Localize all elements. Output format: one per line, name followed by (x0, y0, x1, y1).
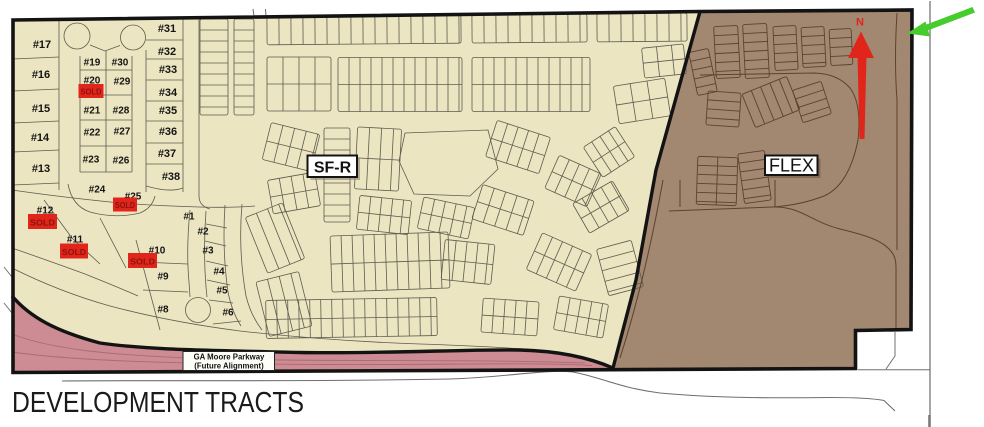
svg-text:#26: #26 (113, 156, 130, 167)
svg-text:#38: #38 (162, 171, 180, 183)
svg-text:#8: #8 (157, 305, 169, 316)
svg-text:SOLD: SOLD (115, 200, 135, 210)
svg-text:#31: #31 (158, 23, 176, 35)
svg-text:(Future Alignment): (Future Alignment) (194, 362, 264, 371)
svg-text:#4: #4 (213, 267, 225, 278)
svg-text:#17: #17 (33, 39, 51, 51)
svg-text:#23: #23 (83, 155, 100, 166)
svg-text:#35: #35 (159, 105, 177, 117)
svg-text:#14: #14 (31, 132, 50, 144)
svg-text:#16: #16 (32, 69, 50, 81)
svg-text:#9: #9 (157, 272, 169, 283)
svg-text:SOLD: SOLD (130, 256, 155, 266)
svg-text:#22: #22 (84, 128, 101, 139)
svg-text:#21: #21 (84, 106, 101, 117)
svg-text:#24: #24 (89, 185, 106, 196)
svg-text:FLEX: FLEX (769, 156, 814, 176)
svg-text:GA Moore Parkway: GA Moore Parkway (194, 352, 265, 361)
svg-text:#37: #37 (158, 148, 176, 160)
svg-text:#19: #19 (84, 58, 101, 69)
svg-text:#28: #28 (113, 106, 130, 117)
svg-text:#6: #6 (222, 308, 234, 319)
svg-text:#30: #30 (112, 58, 129, 69)
svg-text:#34: #34 (159, 87, 178, 99)
svg-text:#2: #2 (197, 227, 209, 238)
svg-text:SOLD: SOLD (30, 217, 55, 227)
svg-text:DEVELOPMENT TRACTS: DEVELOPMENT TRACTS (12, 387, 304, 419)
svg-text:#13: #13 (32, 163, 50, 175)
svg-text:#3: #3 (202, 246, 214, 257)
svg-text:N: N (856, 17, 864, 29)
svg-text:#5: #5 (216, 286, 228, 297)
svg-text:SOLD: SOLD (81, 86, 102, 96)
svg-text:#32: #32 (158, 46, 176, 58)
svg-text:#1: #1 (183, 212, 195, 223)
svg-text:#29: #29 (114, 77, 131, 88)
svg-text:#33: #33 (159, 64, 177, 76)
svg-text:SOLD: SOLD (62, 247, 86, 257)
svg-text:#27: #27 (114, 127, 131, 138)
svg-text:SF-R: SF-R (314, 160, 352, 177)
svg-text:#15: #15 (32, 103, 50, 115)
svg-text:#36: #36 (159, 126, 177, 138)
